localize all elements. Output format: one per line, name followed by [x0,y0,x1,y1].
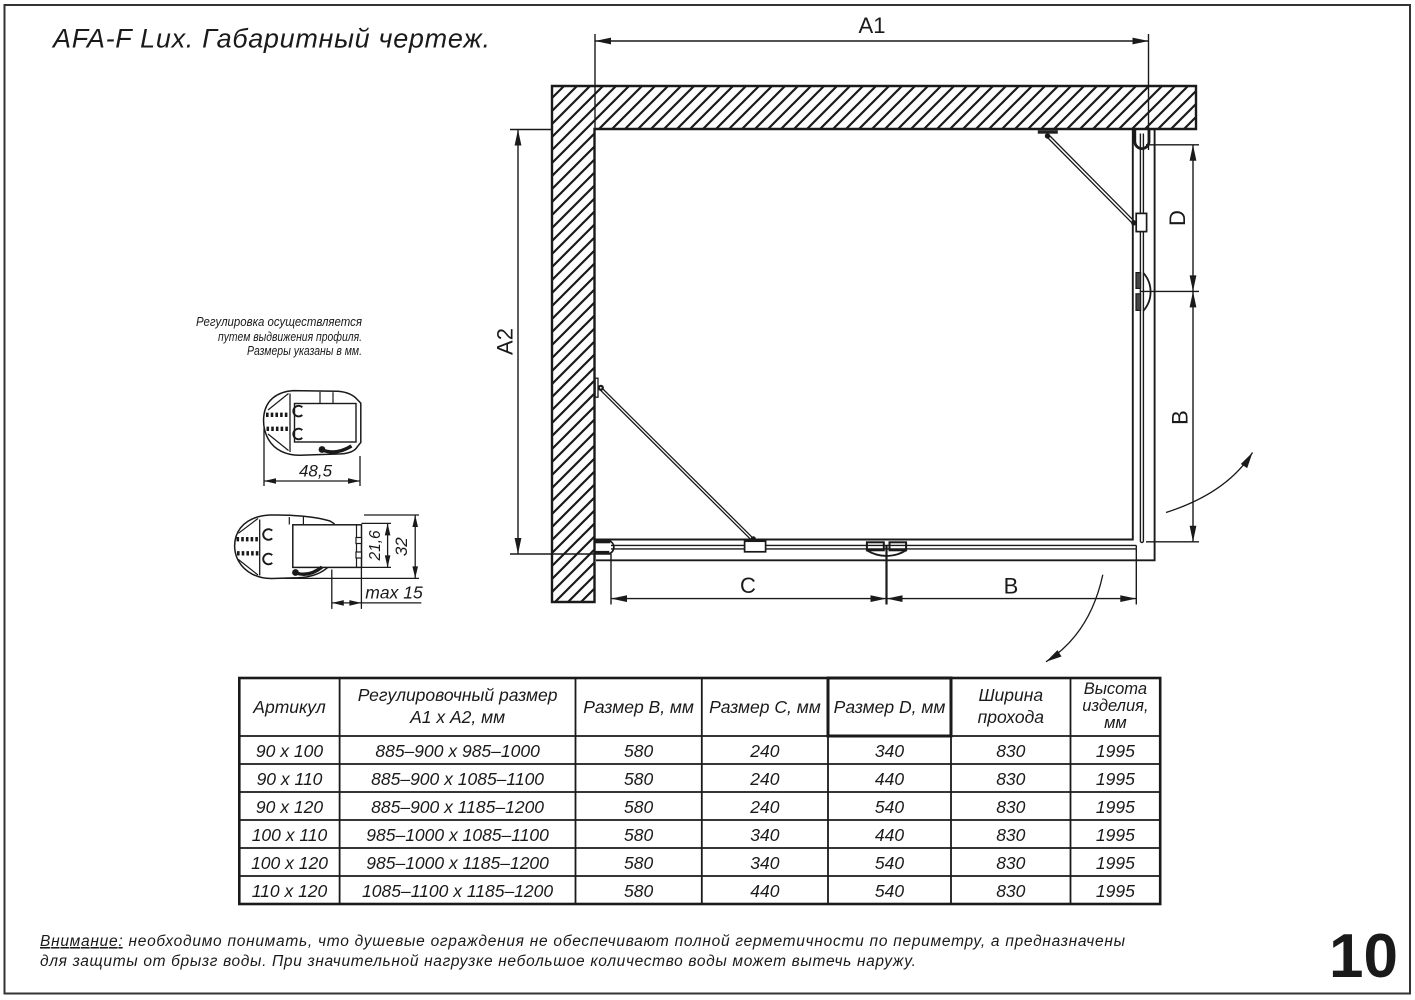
svg-text:1995: 1995 [1096,825,1135,845]
svg-text:240: 240 [749,769,779,789]
svg-text:340: 340 [750,853,779,873]
svg-text:540: 540 [875,797,904,817]
svg-text:21,6: 21,6 [367,530,384,562]
svg-text:Внимание: необходимо понимать,: Внимание: необходимо понимать, что душев… [40,933,1126,950]
svg-text:A1: A1 [859,13,886,38]
svg-text:Артикул: Артикул [252,697,326,717]
svg-text:D: D [1165,210,1190,226]
svg-text:Ширина: Ширина [978,685,1043,705]
svg-text:90 х 110: 90 х 110 [257,769,323,789]
svg-text:830: 830 [996,769,1025,789]
svg-text:830: 830 [996,853,1025,873]
svg-text:830: 830 [996,741,1025,761]
svg-text:830: 830 [996,825,1025,845]
svg-text:B: B [1168,410,1193,425]
svg-text:440: 440 [750,881,779,901]
svg-text:изделия,: изделия, [1082,697,1148,715]
svg-text:340: 340 [875,741,904,761]
svg-text:340: 340 [750,825,779,845]
svg-text:1085–1100 х 1185–1200: 1085–1100 х 1185–1200 [362,881,553,901]
svg-text:10: 10 [1329,922,1398,991]
svg-text:C: C [740,573,756,598]
svg-text:1995: 1995 [1096,797,1135,817]
svg-text:885–900 х 1185–1200: 885–900 х 1185–1200 [371,797,544,817]
svg-text:32: 32 [392,537,411,556]
svg-text:мм: мм [1104,714,1127,732]
svg-text:Регулировочный размер: Регулировочный размер [358,685,558,705]
svg-text:830: 830 [996,797,1025,817]
svg-text:AFA-F Lux. Габаритный чертеж.: AFA-F Lux. Габаритный чертеж. [51,24,490,54]
svg-text:путем выдвижения профиля.: путем выдвижения профиля. [218,330,362,344]
svg-text:А1 х А2, мм: А1 х А2, мм [409,707,505,727]
svg-text:100 х 120: 100 х 120 [251,853,328,873]
svg-text:440: 440 [875,769,904,789]
svg-text:540: 540 [875,853,904,873]
svg-text:1995: 1995 [1096,741,1135,761]
svg-text:1995: 1995 [1096,853,1135,873]
svg-text:240: 240 [749,741,779,761]
svg-text:48,5: 48,5 [299,461,333,480]
svg-text:110 х 120: 110 х 120 [252,881,328,901]
svg-text:580: 580 [624,825,653,845]
svg-text:830: 830 [996,881,1025,901]
svg-text:Размер С, мм: Размер С, мм [709,697,821,717]
svg-text:Размеры указаны в мм.: Размеры указаны в мм. [247,344,362,358]
svg-text:1995: 1995 [1096,769,1135,789]
svg-text:90 х 100: 90 х 100 [256,741,323,761]
svg-text:580: 580 [624,741,653,761]
svg-text:540: 540 [875,881,904,901]
svg-text:885–900 х 985–1000: 885–900 х 985–1000 [375,741,540,761]
svg-text:прохода: прохода [978,707,1045,727]
svg-text:100 х 110: 100 х 110 [252,825,328,845]
svg-text:Регулировка осуществляется: Регулировка осуществляется [196,315,362,329]
svg-text:Размер В, мм: Размер В, мм [583,697,694,717]
svg-text:885–900 х 1085–1100: 885–900 х 1085–1100 [371,769,544,789]
svg-text:1995: 1995 [1096,881,1135,901]
svg-text:Размер D, мм: Размер D, мм [834,697,946,717]
svg-text:для защиты от брызг воды. При: для защиты от брызг воды. При значительн… [40,953,916,970]
svg-text:985–1000 х 1185–1200: 985–1000 х 1185–1200 [366,853,549,873]
svg-text:max 15: max 15 [365,583,423,603]
svg-text:A2: A2 [493,328,518,355]
svg-text:Высота: Высота [1084,680,1147,698]
svg-text:580: 580 [624,797,653,817]
svg-text:90 х 120: 90 х 120 [256,797,323,817]
svg-text:440: 440 [875,825,904,845]
svg-text:B: B [1004,574,1019,599]
svg-text:985–1000 х 1085–1100: 985–1000 х 1085–1100 [366,825,549,845]
svg-text:240: 240 [749,797,779,817]
svg-text:580: 580 [624,881,653,901]
svg-text:580: 580 [624,769,653,789]
svg-text:580: 580 [624,853,653,873]
